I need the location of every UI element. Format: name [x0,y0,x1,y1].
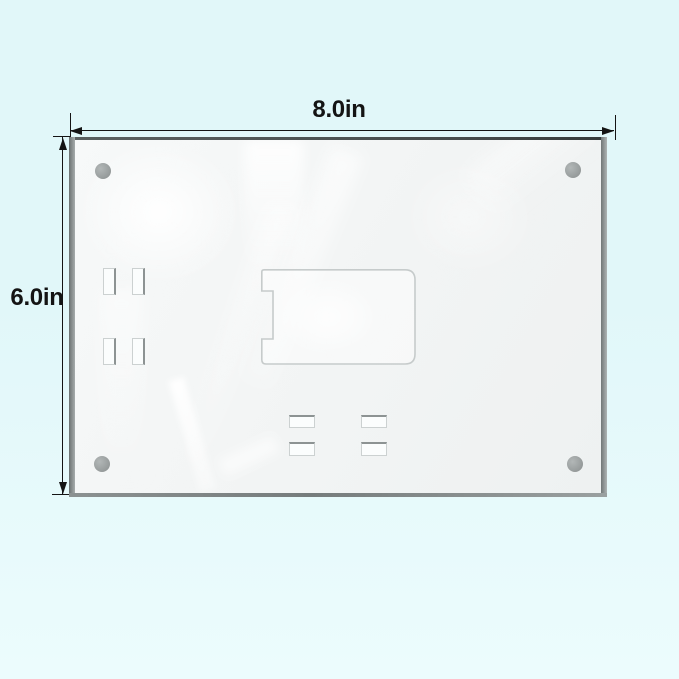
arrowhead-left-icon [70,127,82,135]
wall-mount-slot-top-right [132,268,145,295]
panel-edge-right [601,137,607,497]
wall-mount-slot-bottom-left [103,338,116,365]
screw-hole-top-left [95,163,111,179]
panel-edge-bottom [69,493,607,497]
wall-mount-slot-top-left [103,268,116,295]
arrowhead-right-icon [602,127,614,135]
bottom-slot-top-left [289,415,315,428]
width-label: 8.0in [297,96,381,124]
cutout-path [262,270,415,364]
screw-hole-bottom-right [567,456,583,472]
center-cutout-outline [259,267,419,367]
screw-hole-top-right [565,162,581,178]
bottom-slot-bottom-right [361,442,387,456]
acrylic-panel [69,137,607,497]
panel-edge-left [69,137,75,497]
extension-tick-right [615,115,616,140]
screw-hole-bottom-left [94,456,110,472]
wall-mount-slot-bottom-right [132,338,145,365]
width-dimension-line [71,130,614,131]
height-label: 6.0in [6,284,68,312]
height-dimension-line [62,137,63,494]
panel-edge-top [69,137,607,140]
arrowhead-down-icon [59,482,67,494]
product-dimension-image: 8.0in 6.0in [0,0,679,679]
bottom-slot-bottom-left [289,442,315,456]
bottom-slot-top-right [361,415,387,428]
arrowhead-up-icon [59,138,67,150]
